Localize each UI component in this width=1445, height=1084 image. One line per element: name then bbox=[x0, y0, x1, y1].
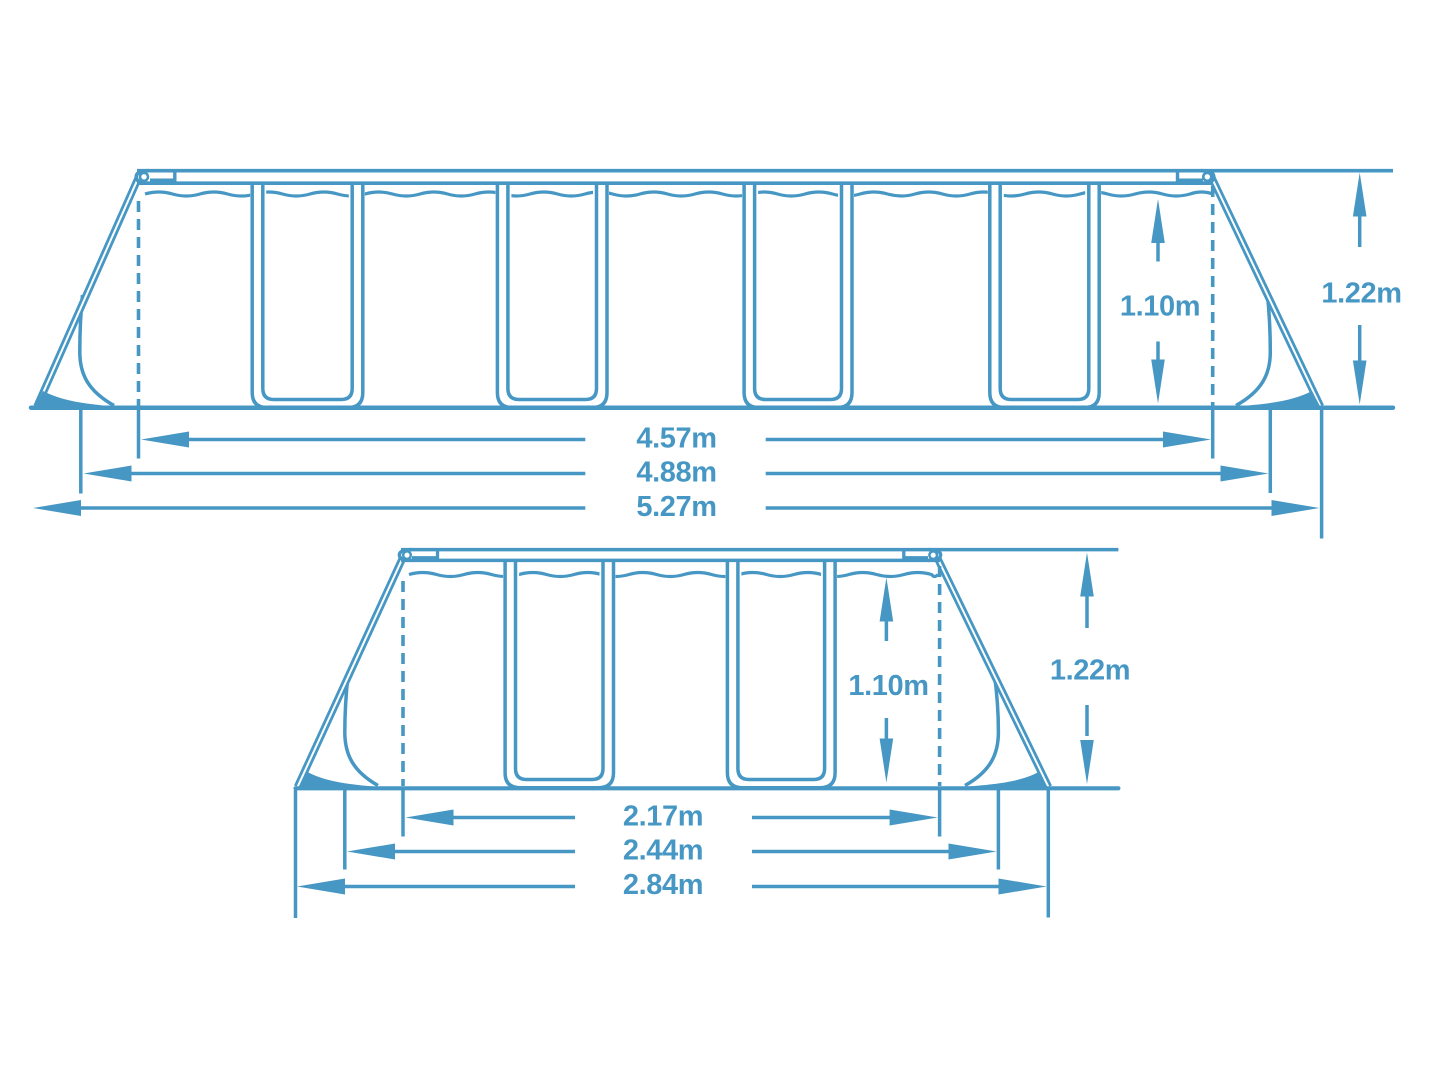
svg-text:4.57m: 4.57m bbox=[636, 422, 716, 454]
svg-text:1.22m: 1.22m bbox=[1321, 277, 1401, 309]
svg-text:2.84m: 2.84m bbox=[623, 869, 703, 901]
svg-text:5.27m: 5.27m bbox=[636, 491, 716, 523]
svg-text:1.10m: 1.10m bbox=[1120, 290, 1200, 322]
svg-text:1.10m: 1.10m bbox=[848, 670, 928, 702]
svg-text:4.88m: 4.88m bbox=[636, 456, 716, 488]
svg-text:1.22m: 1.22m bbox=[1050, 654, 1130, 686]
svg-text:2.17m: 2.17m bbox=[623, 800, 703, 832]
svg-text:2.44m: 2.44m bbox=[623, 834, 703, 866]
